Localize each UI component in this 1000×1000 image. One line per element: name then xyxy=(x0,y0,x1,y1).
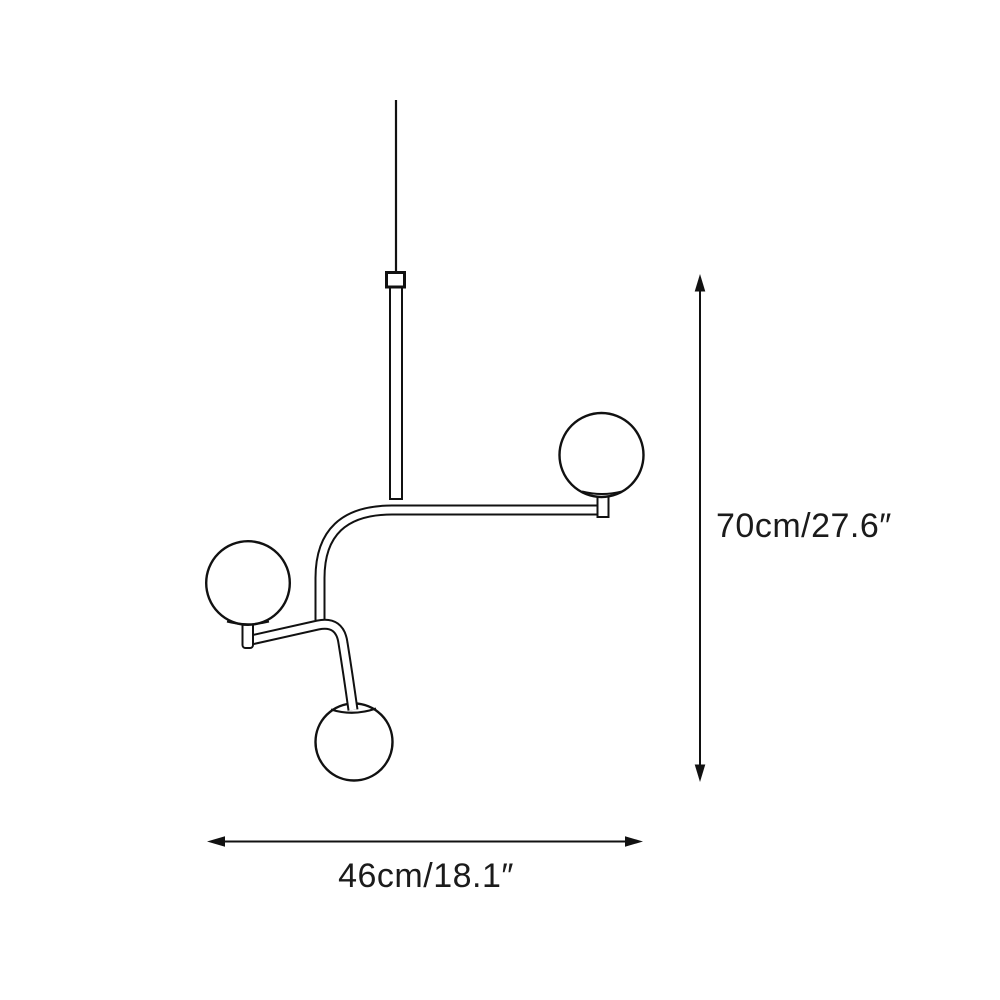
width-dimension-arrow xyxy=(207,836,643,847)
hanging-rod xyxy=(390,287,402,499)
globe-bottom xyxy=(316,704,393,781)
arrow-up-icon xyxy=(695,274,706,292)
height-dimension-arrow xyxy=(695,274,706,782)
lower-arm-tube xyxy=(251,624,353,710)
globe-left xyxy=(206,541,290,625)
cord-connector xyxy=(387,273,405,288)
pendant-lamp-drawing xyxy=(0,0,1000,1000)
height-dimension-label: 70cm/27.6″ xyxy=(716,509,892,543)
globe-right xyxy=(560,413,644,497)
width-dimension-label: 46cm/18.1″ xyxy=(338,859,514,893)
lamp-dimension-diagram: 70cm/27.6″ 46cm/18.1″ xyxy=(0,0,1000,1000)
arrow-left-icon xyxy=(207,836,225,847)
arrow-right-icon xyxy=(625,836,643,847)
arrow-down-icon xyxy=(695,765,706,783)
upper-arm-tube xyxy=(320,510,603,620)
